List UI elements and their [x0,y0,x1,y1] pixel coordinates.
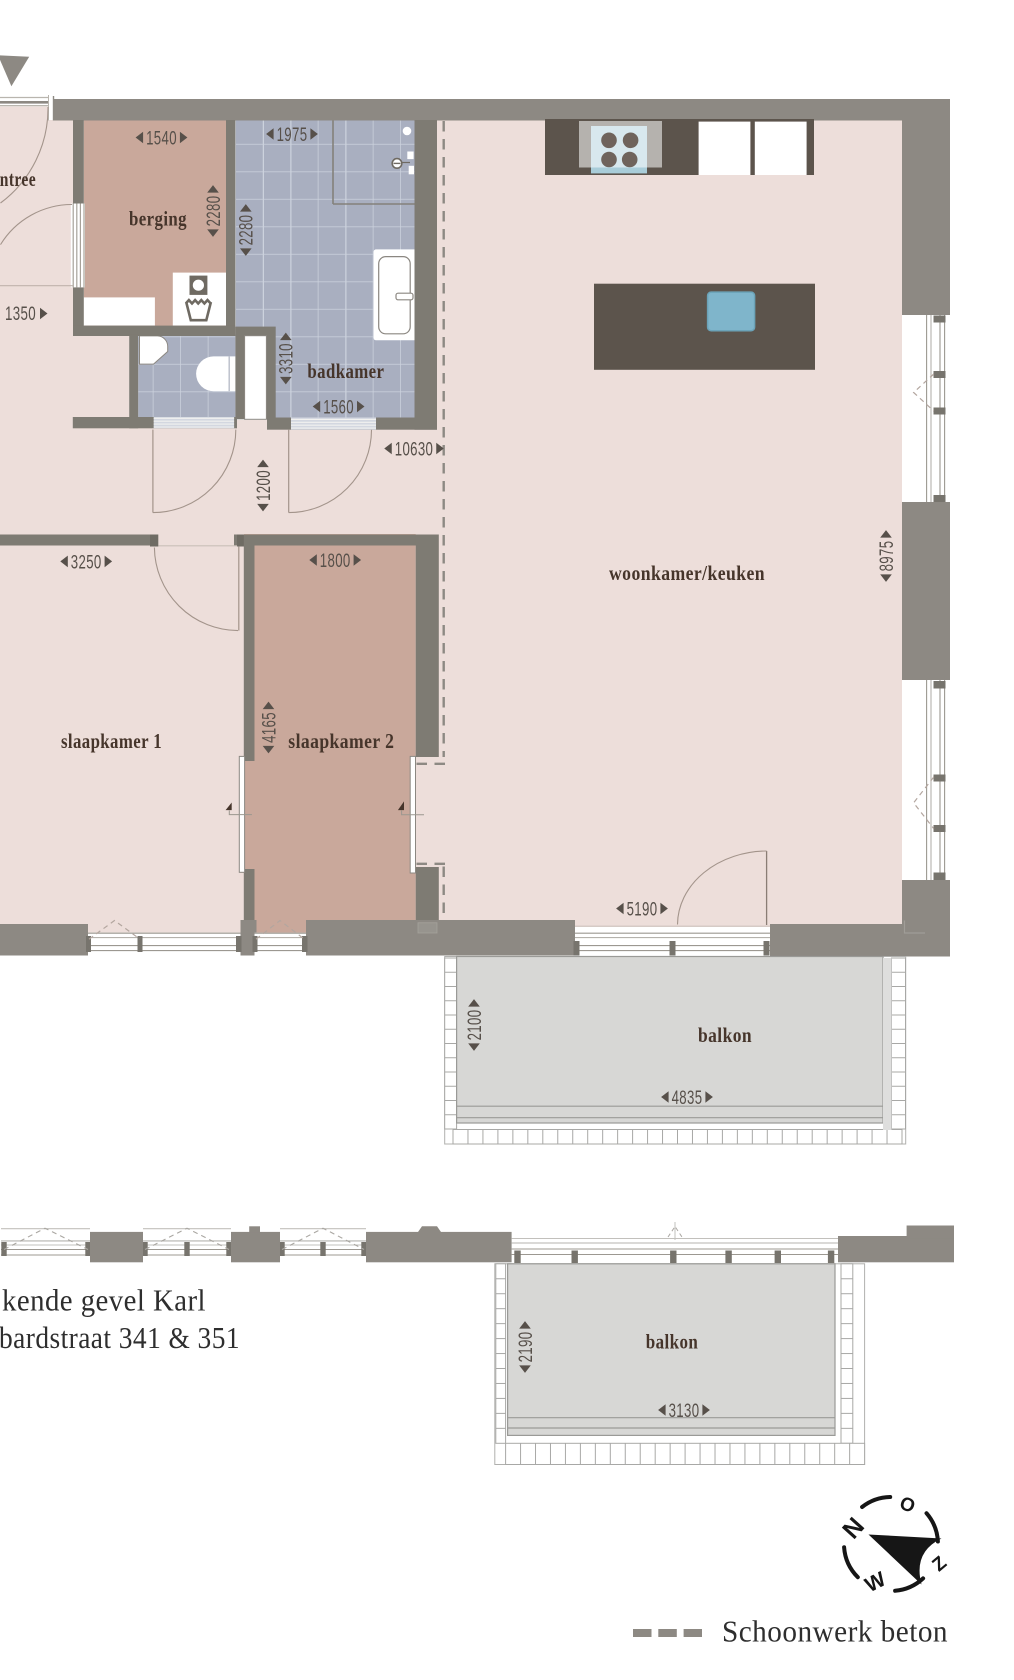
svg-text:1350: 1350 [5,304,36,325]
svg-text:1800: 1800 [320,551,351,572]
svg-text:woonkamer/keuken: woonkamer/keuken [609,561,765,585]
svg-text:2280: 2280 [204,196,225,227]
svg-text:2100: 2100 [465,1010,486,1041]
svg-text:5190: 5190 [627,899,658,920]
svg-text:slaapkamer 1: slaapkamer 1 [61,729,162,753]
svg-text:2190: 2190 [516,1332,537,1363]
svg-text:badkamer: badkamer [307,359,384,383]
svg-text:10630: 10630 [395,439,434,460]
svg-text:3310: 3310 [277,343,298,374]
svg-text:3250: 3250 [71,552,102,573]
svg-text:Schoonwerk beton: Schoonwerk beton [722,1614,948,1649]
svg-text:berging: berging [129,207,187,231]
svg-text:slaapkamer 2: slaapkamer 2 [288,729,394,753]
svg-text:kende gevel Karl: kende gevel Karl [2,1283,206,1318]
svg-text:8975: 8975 [877,541,898,572]
svg-text:1975: 1975 [277,125,308,146]
svg-text:entree: entree [0,167,36,191]
svg-text:3130: 3130 [669,1401,700,1422]
svg-text:4165: 4165 [259,712,280,743]
svg-text:1560: 1560 [323,397,354,418]
svg-text:1200: 1200 [254,470,275,501]
svg-text:balkon: balkon [646,1330,699,1354]
svg-text:bardstraat 341 & 351: bardstraat 341 & 351 [0,1320,240,1355]
svg-text:balkon: balkon [698,1023,752,1047]
svg-text:1540: 1540 [146,128,177,149]
svg-text:4835: 4835 [672,1088,703,1109]
svg-text:2280: 2280 [237,215,258,246]
